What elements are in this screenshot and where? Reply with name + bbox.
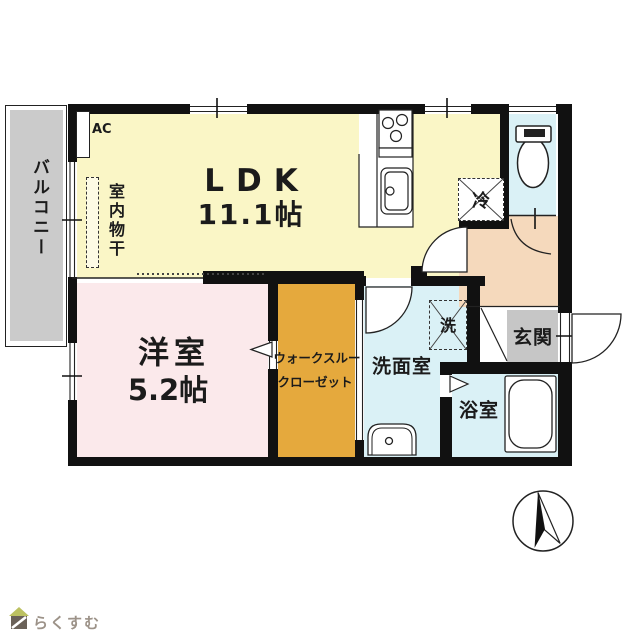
western-room-label: 洋室 <box>138 328 210 373</box>
door-arcs <box>366 219 621 363</box>
toilet-door-arc <box>511 219 551 254</box>
stove-icon <box>379 110 412 157</box>
western-room-size-label: 5.2帖 <box>128 367 208 409</box>
entrance-step-line <box>481 308 507 361</box>
brand-logo-icon <box>9 607 29 629</box>
wtc-label-line1: ウォークスルー <box>273 348 360 367</box>
balcony-label: バルコニー <box>27 158 52 258</box>
ac-label: AC <box>92 122 112 137</box>
washer-label: 洗 <box>440 312 456 336</box>
ldk-size-label: 11.1帖 <box>197 193 304 233</box>
room-divider-lines <box>72 216 560 307</box>
toilet-icon <box>516 126 551 188</box>
washroom-label: 洗面室 <box>372 352 432 379</box>
compass-icon <box>513 490 573 551</box>
bathroom-door-marker <box>450 376 468 392</box>
wtc-opening-marker <box>251 342 272 357</box>
entrance-label: 玄関 <box>513 323 553 350</box>
brand-label: らくすむ <box>33 612 101 633</box>
bathroom-label: 浴室 <box>459 396 499 423</box>
floorplan-canvas: バルコニー AC LDK 11.1帖 室内物干 冷 洋室 5.2帖 ウォークスル… <box>0 0 640 640</box>
fridge-label: 冷 <box>472 187 490 213</box>
floorplan-lineart <box>0 0 640 640</box>
indoor-drying-label: 室内物干 <box>103 183 127 259</box>
kitchen-sink-icon <box>381 168 412 214</box>
front-door-arc <box>572 314 621 363</box>
wtc-label-line2: クローゼット <box>277 372 352 391</box>
washroom-sink-icon <box>368 424 416 455</box>
bathtub-icon <box>505 376 556 452</box>
ldk-hallway-door-arc <box>422 227 467 272</box>
washroom-door-arc <box>366 287 412 333</box>
